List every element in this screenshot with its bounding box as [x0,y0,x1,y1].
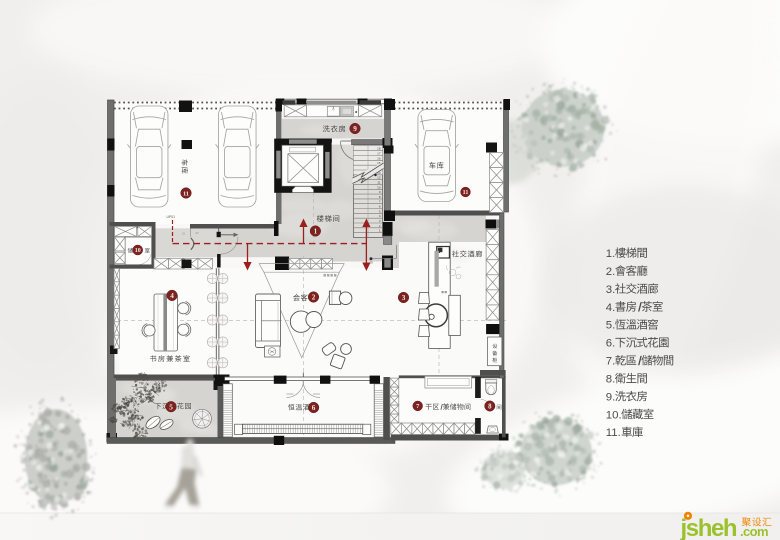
svg-text:11.: 11. [606,427,621,439]
svg-text:11: 11 [463,190,469,196]
svg-text:8.: 8. [606,373,616,385]
svg-text:3.: 3. [606,284,616,296]
svg-text:6: 6 [312,404,316,412]
svg-text:10: 10 [377,185,381,189]
svg-text:2.: 2. [606,266,616,278]
svg-text:4: 4 [170,292,174,300]
svg-text:6.: 6. [606,338,616,350]
svg-text:17: 17 [377,152,381,156]
svg-text:1.: 1. [606,248,616,260]
svg-text:2: 2 [312,294,316,302]
svg-text:5: 5 [169,403,173,411]
svg-text:1: 1 [314,228,318,236]
svg-text:18: 18 [377,147,381,151]
svg-text:16: 16 [377,156,381,160]
svg-text:9: 9 [353,125,357,133]
svg-text:10.: 10. [606,409,622,421]
svg-text:9.: 9. [606,391,616,403]
svg-text:8: 8 [488,403,492,410]
svg-text:7.: 7. [606,356,616,368]
svg-text:3: 3 [402,294,406,302]
svg-text:11: 11 [377,180,380,184]
svg-text:.com: .com [740,524,768,539]
svg-text:29: 29 [370,261,374,265]
svg-text:5.: 5. [606,320,616,332]
svg-text:12: 12 [377,176,381,180]
svg-text:10: 10 [135,248,141,254]
svg-text:11: 11 [183,190,189,197]
svg-text:4.: 4. [606,302,616,314]
svg-text:UP01: UP01 [167,215,176,219]
